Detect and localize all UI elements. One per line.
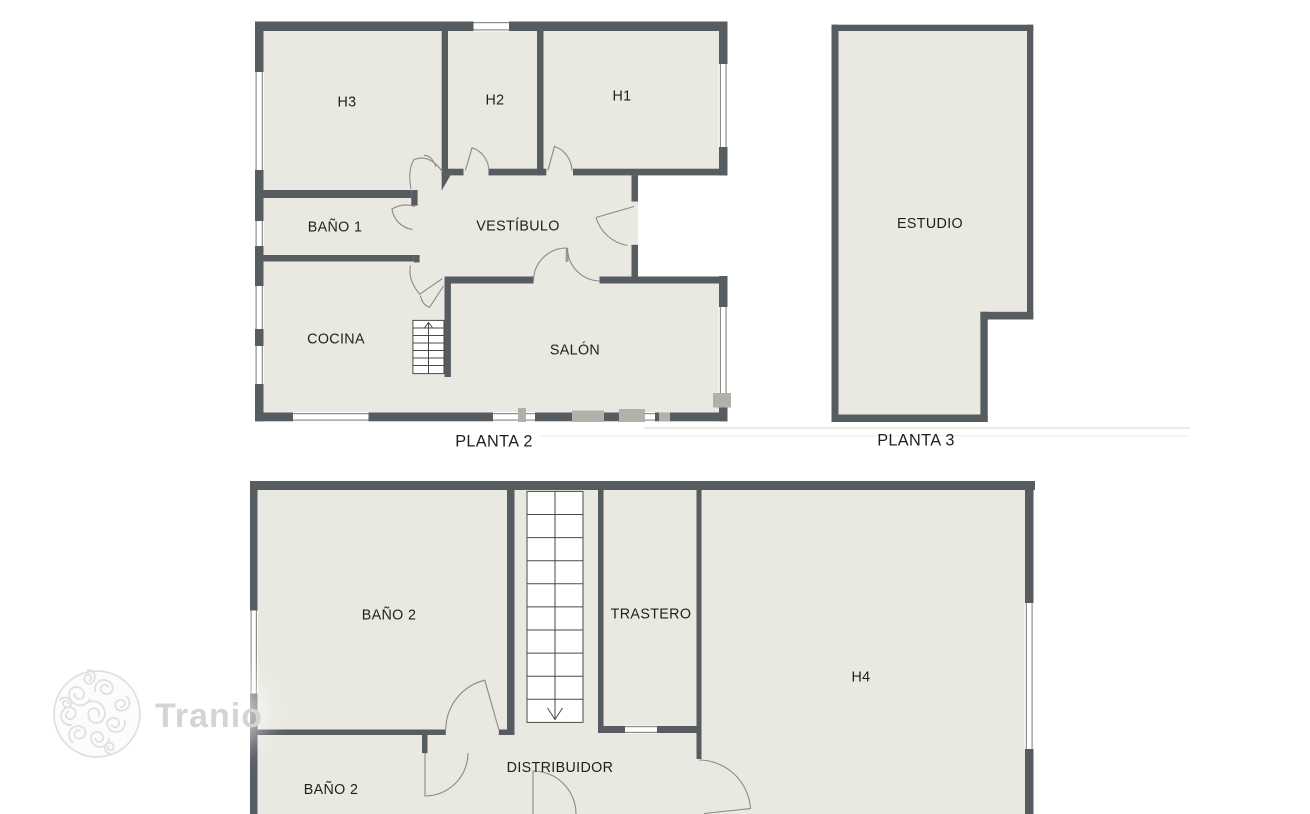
svg-text:VESTÍBULO: VESTÍBULO	[476, 218, 559, 235]
svg-text:BAÑO 2: BAÑO 2	[362, 607, 417, 624]
svg-text:COCINA: COCINA	[307, 332, 365, 348]
svg-text:Tranio: Tranio	[155, 697, 263, 735]
svg-text:PLANTA 3: PLANTA 3	[877, 432, 955, 450]
svg-text:H2: H2	[486, 93, 505, 109]
svg-text:PLANTA 2: PLANTA 2	[455, 433, 533, 451]
svg-text:H3: H3	[338, 95, 357, 111]
svg-text:H4: H4	[852, 670, 871, 686]
svg-text:DISTRIBUIDOR: DISTRIBUIDOR	[507, 760, 614, 776]
svg-text:ESTUDIO: ESTUDIO	[897, 216, 963, 232]
svg-text:H1: H1	[613, 89, 632, 105]
svg-text:SALÓN: SALÓN	[550, 342, 600, 359]
svg-text:TRASTERO: TRASTERO	[611, 607, 692, 623]
svg-text:BAÑO 1: BAÑO 1	[308, 219, 363, 236]
svg-text:BAÑO 2: BAÑO 2	[304, 781, 359, 798]
